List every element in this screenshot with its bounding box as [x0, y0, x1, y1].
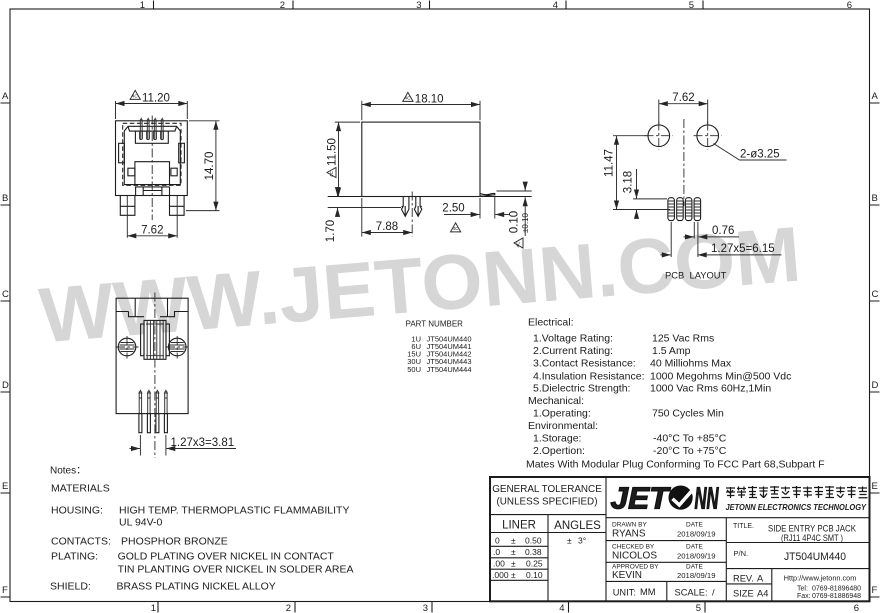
svg-text:DRAWN BY: DRAWN BY — [612, 522, 647, 529]
svg-text:A4: A4 — [757, 589, 768, 599]
svg-text:Tel:: Tel: — [797, 586, 808, 593]
svg-text:Http://www.jetonn.com: Http://www.jetonn.com — [784, 574, 857, 583]
svg-text:A: A — [2, 91, 9, 102]
svg-text:JT504UM444: JT504UM444 — [427, 365, 472, 374]
svg-text:TIN PLANTING OVER NICKEL IN SO: TIN PLANTING OVER NICKEL IN SOLDER AREA — [118, 564, 354, 576]
svg-text:PLATING:: PLATING: — [51, 551, 98, 563]
svg-text:±: ± — [511, 570, 516, 580]
svg-text:TITLE.: TITLE. — [733, 523, 754, 530]
svg-text:1.Storage:: 1.Storage: — [533, 433, 581, 445]
svg-text:0: 0 — [495, 536, 500, 546]
svg-text:SHIELD:: SHIELD: — [50, 581, 91, 593]
svg-text:D: D — [872, 380, 879, 391]
svg-text:A: A — [872, 91, 879, 102]
svg-text:D: D — [2, 380, 9, 391]
svg-text:LINER: LINER — [502, 520, 536, 532]
svg-text:2: 2 — [286, 603, 291, 613]
svg-text:50U: 50U — [407, 365, 421, 374]
svg-text:750 Cycles Min: 750 Cycles Min — [652, 408, 724, 420]
svg-text:GOLD PLATING OVER NICKEL IN CO: GOLD PLATING OVER NICKEL IN CONTACT — [118, 551, 335, 563]
svg-text:7.62: 7.62 — [672, 92, 694, 104]
svg-text:HIGH TEMP. THERMOPLASTIC FLAMM: HIGH TEMP. THERMOPLASTIC FLAMMABILITY — [119, 505, 349, 517]
svg-text:3.Contact Resistance:: 3.Contact Resistance: — [533, 358, 636, 370]
svg-text:5: 5 — [689, 0, 694, 11]
svg-text:UNIT:: UNIT: — [613, 588, 636, 598]
svg-text:0.50: 0.50 — [525, 536, 542, 546]
svg-text:2.Opertion:: 2.Opertion: — [533, 445, 585, 457]
svg-text:125 Vac Rms: 125 Vac Rms — [652, 333, 714, 345]
svg-text:C: C — [872, 289, 879, 300]
svg-text:2-ø3.25: 2-ø3.25 — [740, 149, 780, 161]
svg-text:40 Milliohms Max: 40 Milliohms Max — [650, 358, 732, 370]
svg-text:11.47: 11.47 — [604, 149, 616, 177]
svg-text:MATERIALS: MATERIALS — [51, 483, 110, 495]
svg-text:KEVIN: KEVIN — [612, 570, 642, 581]
svg-text:NICOLOS: NICOLOS — [612, 550, 657, 561]
svg-text:2.Current Rating:: 2.Current Rating: — [533, 345, 613, 357]
svg-text:1: 1 — [151, 603, 156, 613]
svg-text:ANGLES: ANGLES — [554, 520, 601, 532]
svg-text:DATE: DATE — [686, 564, 704, 571]
svg-text:MM: MM — [640, 587, 656, 597]
svg-text:.00: .00 — [493, 559, 505, 569]
svg-text:0769-81886948: 0769-81886948 — [812, 593, 861, 600]
svg-text:1: 1 — [140, 0, 145, 11]
svg-text:14.70: 14.70 — [204, 152, 216, 181]
svg-text:5: 5 — [696, 603, 701, 613]
svg-text:(UNLESS SPECIFIED): (UNLESS SPECIFIED) — [497, 497, 598, 508]
svg-text:4C: 4C — [405, 96, 412, 101]
svg-text:4.Insulation Resistance:: 4.Insulation Resistance: — [533, 370, 644, 382]
svg-text:2018/09/19: 2018/09/19 — [677, 530, 715, 539]
svg-text:6: 6 — [847, 0, 852, 11]
svg-text:11.50: 11.50 — [327, 138, 339, 166]
svg-text:/: / — [712, 588, 715, 598]
svg-text:7.88: 7.88 — [376, 221, 398, 233]
svg-text:Notes：: Notes： — [50, 466, 86, 477]
svg-text:3.18: 3.18 — [623, 171, 635, 193]
svg-text:0.10: 0.10 — [526, 570, 543, 580]
svg-text:±: ± — [567, 536, 572, 546]
svg-text:F: F — [2, 585, 8, 596]
svg-text:4C: 4C — [132, 94, 139, 99]
svg-text:Fax:: Fax: — [797, 593, 811, 600]
svg-text:3: 3 — [423, 603, 428, 613]
svg-text:1.27x5=6.15: 1.27x5=6.15 — [711, 243, 775, 255]
svg-text:2018/09/19: 2018/09/19 — [677, 551, 715, 560]
svg-text:E: E — [2, 481, 8, 492]
svg-text:4C: 4C — [516, 241, 521, 248]
svg-text:Electrical:: Electrical: — [528, 317, 574, 329]
svg-text:DATE: DATE — [686, 544, 704, 551]
svg-text:1.5 Amp: 1.5 Amp — [652, 345, 691, 357]
svg-text:B: B — [872, 193, 878, 204]
svg-text:JT504UM440: JT504UM440 — [784, 551, 846, 563]
svg-text:GENERAL TOLERANCE: GENERAL TOLERANCE — [492, 484, 602, 495]
svg-text:CONTACTS:: CONTACTS: — [51, 536, 111, 548]
svg-text:-20°C To +75°C: -20°C To +75°C — [653, 445, 727, 457]
svg-text:B: B — [2, 193, 8, 204]
svg-text:-40°C To +85°C: -40°C To +85°C — [653, 433, 727, 445]
svg-text:PHOSPHOR BRONZE: PHOSPHOR BRONZE — [121, 536, 228, 548]
svg-text:4: 4 — [559, 603, 564, 613]
svg-text:UL 94V-0: UL 94V-0 — [119, 517, 163, 529]
svg-text:P/N.: P/N. — [734, 549, 749, 558]
svg-text:3°: 3° — [578, 536, 586, 546]
svg-text:Mates With Modular Plug Confor: Mates With Modular Plug Conforming To FC… — [526, 458, 825, 470]
svg-text:±: ± — [511, 547, 516, 557]
svg-text:4: 4 — [553, 0, 558, 11]
svg-text:1.27x3=3.81: 1.27x3=3.81 — [171, 437, 235, 449]
svg-text:0.38: 0.38 — [525, 547, 542, 557]
svg-text:Environmental:: Environmental: — [528, 420, 598, 432]
svg-text:SIZE: SIZE — [733, 589, 754, 599]
svg-text:(RJ11 4P4C SMT ): (RJ11 4P4C SMT ) — [781, 532, 843, 543]
svg-text:SCALE:: SCALE: — [675, 588, 708, 598]
svg-text:BRASS PLATING NICKEL ALLOY: BRASS PLATING NICKEL ALLOY — [117, 581, 276, 593]
svg-text:.0: .0 — [493, 547, 500, 557]
svg-text:2: 2 — [280, 0, 285, 11]
svg-text:DATE: DATE — [686, 522, 704, 529]
svg-text:1.Operating:: 1.Operating: — [533, 408, 591, 420]
svg-text:3: 3 — [416, 0, 421, 11]
svg-text:±: ± — [511, 559, 516, 569]
svg-text:11.20: 11.20 — [142, 93, 170, 105]
svg-text:0.10: 0.10 — [509, 211, 521, 233]
svg-text:0.76: 0.76 — [712, 225, 734, 237]
svg-text:2.50: 2.50 — [442, 203, 464, 215]
svg-text:A: A — [757, 574, 764, 584]
svg-text:0.25: 0.25 — [526, 559, 543, 569]
svg-text:E: E — [872, 481, 878, 492]
svg-text:JET: JET — [611, 482, 671, 516]
svg-text:PCB LAYOUT: PCB LAYOUT — [665, 270, 727, 281]
svg-text:4C: 4C — [329, 170, 334, 177]
svg-text:RYANS: RYANS — [612, 529, 646, 540]
svg-text:JETONN ELECTRONICS TECHNOLOGY: JETONN ELECTRONICS TECHNOLOGY — [726, 502, 868, 512]
svg-text:1.70: 1.70 — [325, 220, 337, 242]
svg-text:5.Dielectric Strength:: 5.Dielectric Strength: — [533, 383, 630, 395]
svg-text:PART NUMBER: PART NUMBER — [406, 320, 464, 329]
svg-text:2018/09/19: 2018/09/19 — [677, 571, 715, 580]
svg-text:HOUSING:: HOUSING: — [51, 505, 103, 517]
svg-text:.000: .000 — [492, 570, 509, 580]
svg-text:6: 6 — [854, 603, 859, 613]
svg-text:F: F — [872, 585, 878, 596]
svg-text:1000 Megohms Min@500 Vdc: 1000 Megohms Min@500 Vdc — [650, 370, 791, 382]
svg-text:18.10: 18.10 — [415, 94, 444, 106]
svg-text:NN: NN — [695, 482, 720, 516]
svg-text:7.62: 7.62 — [141, 225, 163, 237]
svg-text:C: C — [2, 289, 9, 300]
svg-text:±: ± — [511, 536, 516, 546]
svg-text:1000 Vac Rms 60Hz,1Min: 1000 Vac Rms 60Hz,1Min — [650, 383, 771, 395]
svg-text:0769-81896480: 0769-81896480 — [812, 586, 861, 593]
svg-text:4C: 4C — [453, 226, 460, 231]
svg-text:1.Voltage Rating:: 1.Voltage Rating: — [533, 333, 613, 345]
svg-text:REV.: REV. — [733, 574, 754, 584]
svg-text:Mechanical:: Mechanical: — [528, 395, 584, 407]
svg-text:±0.10: ±0.10 — [521, 212, 530, 233]
